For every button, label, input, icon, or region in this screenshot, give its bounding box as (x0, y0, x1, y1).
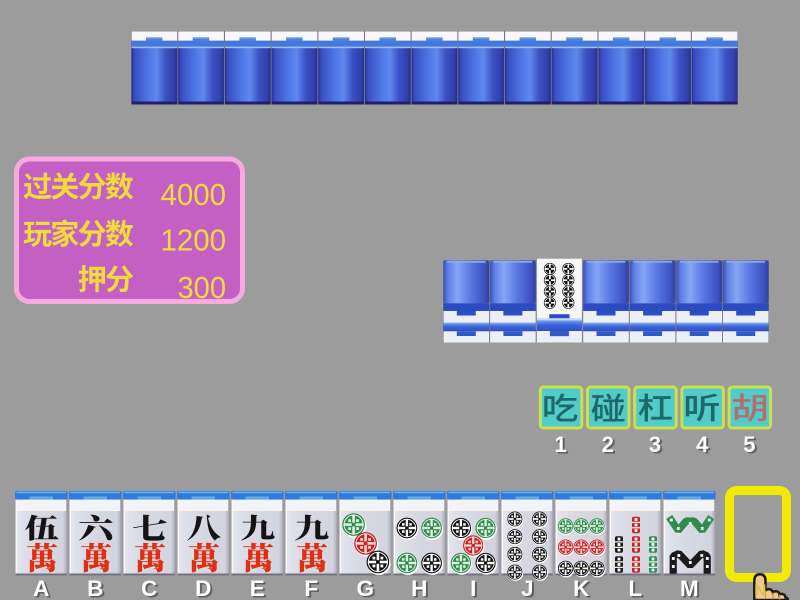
svg-text:1200: 1200 (161, 223, 227, 257)
svg-text:300: 300 (178, 271, 227, 305)
svg-text:A: A (33, 576, 49, 600)
svg-text:4: 4 (696, 432, 709, 457)
svg-text:N: N (754, 581, 766, 600)
svg-text:K: K (573, 576, 590, 600)
svg-text:5: 5 (743, 432, 755, 457)
svg-text:G: G (356, 576, 374, 600)
svg-text:3: 3 (649, 432, 661, 457)
svg-text:I: I (470, 576, 476, 600)
svg-text:D: D (195, 576, 211, 600)
svg-text:J: J (521, 576, 534, 600)
svg-text:E: E (250, 576, 265, 600)
svg-text:C: C (141, 576, 157, 600)
svg-text:B: B (87, 576, 103, 600)
svg-text:H: H (411, 576, 427, 600)
svg-text:2: 2 (602, 432, 614, 457)
svg-text:L: L (628, 576, 642, 600)
svg-text:F: F (304, 576, 318, 600)
svg-text:1: 1 (554, 432, 566, 457)
svg-text:M: M (680, 576, 699, 600)
svg-text:4000: 4000 (161, 178, 227, 212)
